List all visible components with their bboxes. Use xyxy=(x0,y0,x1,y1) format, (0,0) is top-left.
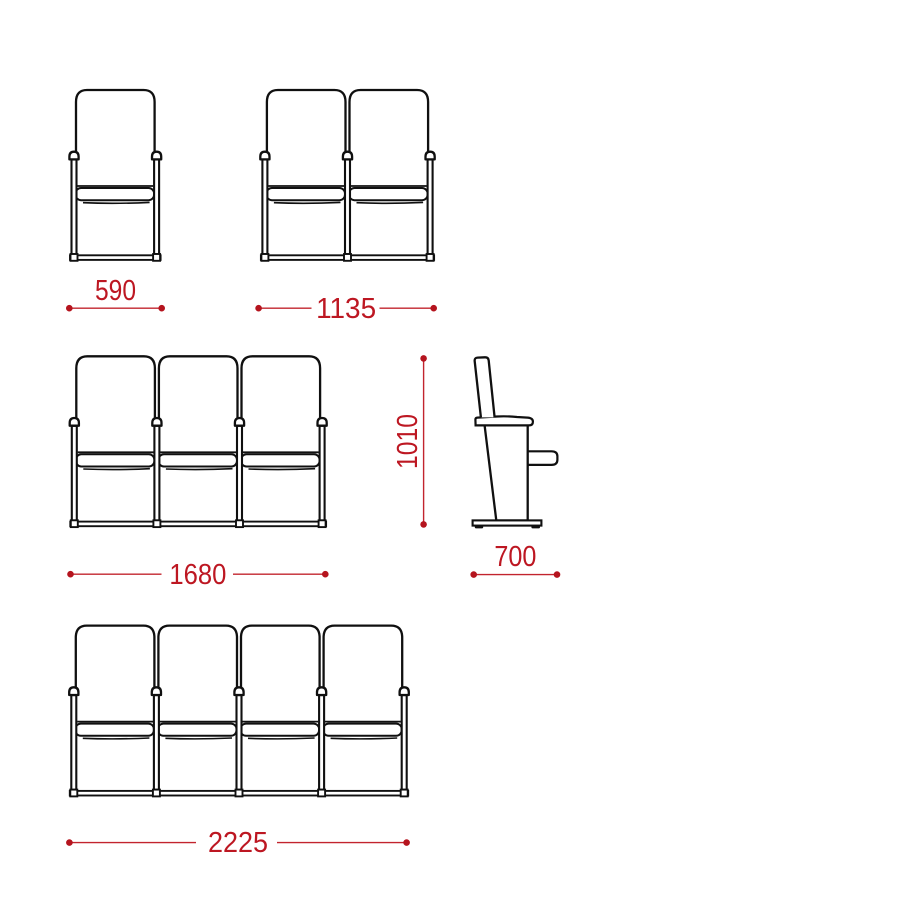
svg-text:1135: 1135 xyxy=(316,293,376,325)
svg-text:1010: 1010 xyxy=(392,414,424,469)
svg-text:2225: 2225 xyxy=(208,827,268,859)
svg-text:590: 590 xyxy=(95,275,136,307)
svg-text:1680: 1680 xyxy=(169,559,226,591)
svg-text:700: 700 xyxy=(494,541,536,573)
